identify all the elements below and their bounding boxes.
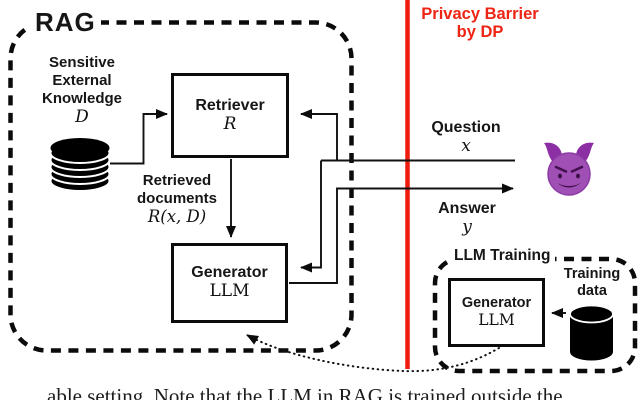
retrieved-documents-label: Retrieved documents R(x, D) <box>137 172 217 226</box>
generator-box: Generator LLM <box>171 243 288 323</box>
arrow-question-to-generator <box>301 161 321 268</box>
retriever-box: Retriever R <box>171 73 289 158</box>
figure-caption-fragment: able setting. Note that the LLM in RAG i… <box>47 384 563 400</box>
training-generator-symbol: LLM <box>478 312 514 330</box>
llm-training-label: LLM Training <box>449 247 555 265</box>
answer-label: Answer y <box>438 199 496 237</box>
generator-symbol: LLM <box>210 282 250 302</box>
retriever-symbol: R <box>224 115 237 135</box>
rag-privacy-diagram: RAG Privacy Barrier by DP Sensitive Exte… <box>0 0 640 400</box>
retriever-name: Retriever <box>195 97 264 115</box>
knowledge-line3: Knowledge <box>42 90 122 108</box>
privacy-barrier-line2: by DP <box>421 23 538 41</box>
training-data-line2: data <box>564 283 620 300</box>
training-data-line1: Training <box>564 266 620 283</box>
question-text: Question <box>431 118 500 137</box>
question-label: Question x <box>431 118 500 156</box>
retrieved-line2: documents <box>137 190 217 208</box>
answer-text: Answer <box>438 199 496 218</box>
retrieved-line1: Retrieved <box>137 172 217 190</box>
knowledge-symbol: D <box>42 108 122 126</box>
training-generator-name: Generator <box>462 295 531 312</box>
training-generator-box: Generator LLM <box>448 278 545 347</box>
training-data-label: Training data <box>564 266 620 299</box>
rag-container-label: RAG <box>30 7 101 38</box>
privacy-barrier-label: Privacy Barrier by DP <box>421 5 538 41</box>
privacy-barrier-line1: Privacy Barrier <box>421 5 538 23</box>
question-symbol: x <box>431 137 500 156</box>
database-stack-icon <box>51 138 110 191</box>
retrieved-formula: R(x, D) <box>137 208 217 226</box>
generator-name: Generator <box>191 264 267 282</box>
knowledge-line1: Sensitive <box>42 54 122 72</box>
sensitive-knowledge-label: Sensitive External Knowledge D <box>42 54 122 126</box>
devil-emoji <box>544 143 594 195</box>
database-cylinder-icon <box>570 306 613 361</box>
answer-symbol: y <box>438 218 496 237</box>
knowledge-line2: External <box>42 72 122 90</box>
arrow-question-to-retriever <box>301 114 337 161</box>
